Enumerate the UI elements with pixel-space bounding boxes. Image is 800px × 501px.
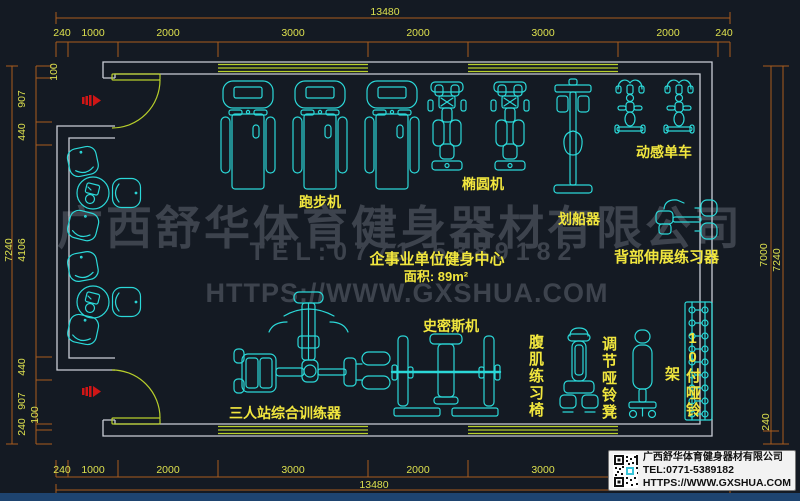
dim-total-left: 7240 — [3, 222, 15, 278]
entrance-marker-icon — [82, 386, 101, 397]
multi-station-trainer — [234, 292, 390, 393]
dim-label: 2000 — [148, 464, 188, 476]
dim-inner-right: 7000 — [758, 227, 770, 283]
entrance-marker-icon — [82, 95, 101, 106]
dumbbell-bench — [629, 330, 656, 418]
info-url: HTTPS://WWW.GXSHUA.COM — [643, 477, 791, 490]
dim-label: 440 — [16, 104, 28, 160]
dim-label: 240 — [16, 399, 28, 455]
door-top — [112, 74, 160, 128]
label-multi-station: 三人站综合训练器 — [203, 403, 367, 423]
label-rower: 划船器 — [519, 209, 639, 229]
ab-chair-machine — [560, 328, 598, 412]
label-dumbbell-bench: 调节哑铃凳 — [598, 332, 619, 424]
qr-code-icon — [613, 454, 638, 488]
spin-bikes — [615, 80, 694, 133]
treadmills — [221, 81, 419, 189]
dim-label: 2000 — [398, 27, 438, 39]
lounge-chairs-tables — [66, 145, 141, 346]
dim-outer-right: 7240 — [771, 232, 783, 288]
label-smith-machine: 史密斯机 — [391, 316, 511, 336]
dim-wall-right: 240 — [760, 394, 772, 450]
dim-label: 2000 — [648, 27, 688, 39]
label-treadmill: 跑步机 — [260, 192, 380, 212]
door-bottom — [112, 370, 160, 424]
dim-label: 3000 — [273, 464, 313, 476]
dim-label: 1000 — [73, 464, 113, 476]
cad-floorplan-canvas: 广西舒华体育健身器材有限公司 TEL:0771-5389182 HTTPS://… — [0, 0, 800, 501]
label-dumbbell-rack: 10付哑铃架 — [661, 326, 703, 422]
dim-label: 240 — [704, 27, 744, 39]
label-spin-bike: 动感单车 — [602, 142, 726, 162]
ellipticals — [428, 82, 529, 170]
dim-label: 4106 — [16, 222, 28, 278]
rowing-machine — [554, 79, 592, 193]
info-company: 广西舒华体育健身器材有限公司 — [643, 452, 791, 465]
info-tel: TEL:0771-5389182 — [643, 464, 791, 477]
dim-label: 3000 — [523, 464, 563, 476]
back-extension-machine — [656, 200, 717, 239]
dim-label: 100 — [29, 387, 41, 443]
dim-label: 2000 — [398, 464, 438, 476]
label-ab-chair: 腹肌练习椅 — [525, 330, 546, 422]
smith-machine — [392, 334, 500, 416]
company-info-box: 广西舒华体育健身器材有限公司 TEL:0771-5389182 HTTPS://… — [608, 450, 796, 491]
label-back-extension: 背部伸展练习器 — [594, 246, 739, 267]
dim-total-top: 13480 — [355, 6, 415, 18]
label-elliptical: 椭圆机 — [423, 174, 543, 194]
room-area: 面积: 89m² — [371, 266, 501, 285]
dim-label: 1000 — [73, 27, 113, 39]
dim-label: 100 — [48, 44, 60, 100]
bottom-bar — [0, 493, 800, 501]
dim-label: 2000 — [148, 27, 188, 39]
dim-label: 3000 — [273, 27, 313, 39]
dim-total-bottom: 13480 — [344, 479, 404, 491]
dim-label: 3000 — [523, 27, 563, 39]
